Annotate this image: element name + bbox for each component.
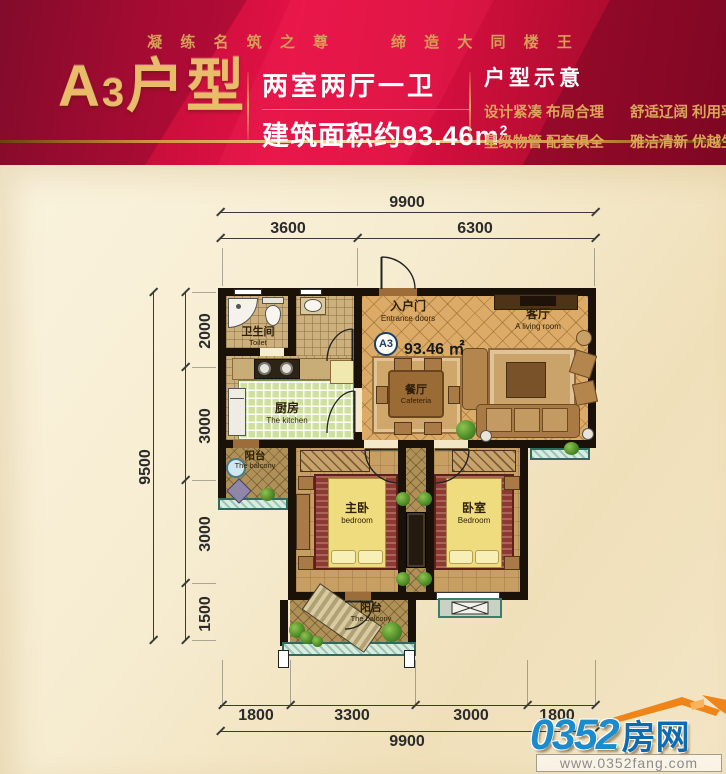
header-banner: 凝 练 名 筑 之 尊缔 造 大 同 楼 王 A3户型 两室两厅一卫 建筑面积约… bbox=[0, 0, 726, 165]
floor-lamp-icon bbox=[480, 430, 492, 442]
slogan-right: 缔 造 大 同 楼 王 bbox=[391, 34, 579, 51]
air-shaft bbox=[438, 598, 502, 618]
sofa-cushion bbox=[486, 408, 512, 432]
dim-top-seg2: 6300 bbox=[445, 220, 505, 238]
label-en: Entrance doors bbox=[372, 314, 444, 323]
unit-badge: A3 bbox=[374, 332, 398, 356]
label-cn: 卫生间 bbox=[228, 326, 288, 339]
area-line: 建筑面积约93.46m2 bbox=[262, 114, 508, 153]
pillow bbox=[449, 550, 473, 564]
site-logo[interactable]: 0352房网 www.0352fang.com bbox=[528, 694, 726, 774]
logo-number: 0352 bbox=[530, 711, 618, 759]
dim-left-seg3: 3000 bbox=[197, 509, 215, 559]
sofa-cushion bbox=[514, 408, 540, 432]
label-en: The balcony bbox=[332, 615, 410, 624]
layout-line: 两室两厅一卫 bbox=[262, 66, 508, 103]
feature-text: 星级物管 配套俱全 bbox=[484, 131, 604, 152]
side-balcony-window bbox=[218, 498, 288, 510]
summary-separator bbox=[262, 109, 470, 110]
wall-bottom-balcony-left bbox=[280, 600, 288, 646]
wall-bedroom-bottom-b bbox=[372, 592, 436, 600]
dim-left-seg2: 3000 bbox=[197, 401, 215, 451]
plant-icon bbox=[418, 572, 432, 586]
label-dining: 餐厅 Cafeteria bbox=[389, 384, 443, 405]
toilet-tank-icon bbox=[262, 297, 284, 304]
label-en: A living room bbox=[498, 322, 578, 331]
plant-icon bbox=[456, 420, 476, 440]
label-cn: 餐厅 bbox=[389, 384, 443, 397]
unit-area-value: 93.46 ㎡ bbox=[404, 335, 494, 359]
wall-bedroom-left bbox=[288, 448, 296, 600]
unit-type-title: A3户型 bbox=[58, 58, 246, 116]
plant-icon bbox=[564, 442, 579, 455]
tv-icon bbox=[520, 296, 556, 306]
title-divider-2 bbox=[469, 72, 471, 140]
nightstand bbox=[504, 476, 520, 490]
section-title: 户型示意 bbox=[484, 62, 726, 92]
dim-extension bbox=[594, 248, 595, 286]
label-en: Toilet bbox=[228, 339, 288, 348]
label-en: The balcony bbox=[222, 462, 288, 471]
plant-icon bbox=[396, 492, 410, 506]
label-toilet: 卫生间 Toilet bbox=[228, 326, 288, 347]
window-toilet bbox=[234, 289, 262, 295]
wall-kitchen-right-a bbox=[354, 372, 362, 388]
dim-left-seg4: 1500 bbox=[197, 589, 215, 639]
balcony-post-right bbox=[404, 650, 415, 668]
label-second-bedroom: 卧室 Bedroom bbox=[447, 502, 501, 525]
area-text: 建筑面积约93.46m bbox=[262, 121, 500, 151]
feature-text: 雅洁清新 优越生活 bbox=[630, 131, 726, 152]
dim-bottom-seg3: 3000 bbox=[441, 707, 501, 725]
dining-chair bbox=[424, 422, 442, 435]
dim-left-seg1: 2000 bbox=[197, 306, 215, 356]
label-cn: 卧室 bbox=[447, 502, 501, 516]
washbasin-icon bbox=[304, 299, 322, 312]
entrance-door-swing bbox=[380, 256, 416, 290]
dining-chair bbox=[448, 386, 460, 404]
burner-icon bbox=[258, 362, 271, 375]
label-cn: 阳台 bbox=[332, 602, 410, 615]
dining-chair bbox=[394, 422, 412, 435]
second-bedroom-door-swing bbox=[434, 448, 470, 484]
fridge-icon bbox=[228, 388, 246, 436]
nightstand bbox=[298, 476, 314, 490]
fridge-line bbox=[230, 398, 244, 399]
label-bottom-balcony: 阳台 The balcony bbox=[332, 602, 410, 623]
dim-extension bbox=[222, 660, 223, 704]
nightstand bbox=[504, 556, 520, 570]
bedroom-bench bbox=[296, 494, 310, 550]
flyer: 凝 练 名 筑 之 尊缔 造 大 同 楼 王 A3户型 两室两厅一卫 建筑面积约… bbox=[0, 0, 726, 774]
dim-extension bbox=[192, 583, 216, 584]
logo-url[interactable]: www.0352fang.com bbox=[536, 754, 722, 772]
coffee-table bbox=[506, 362, 546, 398]
wall-bedroom-bottom-c bbox=[500, 592, 528, 600]
dim-left-total: 9500 bbox=[137, 442, 155, 492]
dim-extension bbox=[192, 292, 216, 293]
title-letter: A bbox=[58, 54, 102, 119]
niche-closet bbox=[406, 512, 426, 568]
label-cn: 主卧 bbox=[329, 502, 385, 516]
wall-niche-right bbox=[426, 448, 434, 592]
slogan-left: 凝 练 名 筑 之 尊 bbox=[147, 34, 335, 51]
features-block: 户型示意 设计紧凑 布局合理 舒适辽阔 利用率高 星级物管 配套俱全 雅洁清新 … bbox=[484, 62, 726, 152]
wardrobe-master bbox=[300, 450, 370, 472]
pillow bbox=[358, 550, 383, 564]
title-divider-1 bbox=[247, 72, 249, 140]
dim-top-seg1: 3600 bbox=[258, 220, 318, 238]
master-bedroom-door-swing bbox=[364, 448, 400, 484]
hall-door-swing bbox=[326, 328, 354, 362]
floor-lamp-icon bbox=[582, 428, 594, 440]
wall-left-upper bbox=[218, 288, 226, 448]
shower-head-icon bbox=[236, 304, 241, 309]
dim-extension bbox=[357, 248, 358, 286]
armchair bbox=[572, 380, 598, 406]
balcony-side-threshold bbox=[232, 440, 260, 448]
plant-icon bbox=[382, 622, 402, 642]
side-table bbox=[576, 330, 592, 346]
wall-toilet-bottom-a bbox=[226, 348, 260, 356]
label-en: Bedroom bbox=[447, 516, 501, 525]
burner-icon bbox=[280, 362, 293, 375]
label-master-bedroom: 主卧 bedroom bbox=[329, 502, 385, 525]
label-cn: 入户门 bbox=[372, 300, 444, 314]
label-side-balcony: 阳台 The balcony bbox=[222, 450, 288, 471]
label-kitchen: 厨房 The kitchen bbox=[252, 402, 322, 425]
kitchen-sink bbox=[330, 360, 354, 384]
pillow bbox=[475, 550, 499, 564]
label-cn: 厨房 bbox=[252, 402, 322, 416]
logo-text: 0352房网 bbox=[530, 710, 690, 760]
dim-bottom-seg2: 3300 bbox=[322, 707, 382, 725]
dim-top-total: 9900 bbox=[377, 194, 437, 212]
feature-row-1: 设计紧凑 布局合理 舒适辽阔 利用率高 bbox=[484, 101, 726, 122]
dim-bottom-seg1: 1800 bbox=[226, 707, 286, 725]
dim-extension bbox=[290, 660, 291, 704]
title-suffix: 户型 bbox=[126, 54, 246, 119]
plant-icon bbox=[260, 488, 275, 501]
dim-line-top-total bbox=[220, 212, 595, 213]
plant-icon bbox=[418, 492, 432, 506]
nightstand bbox=[298, 556, 314, 570]
wall-mid-b bbox=[398, 440, 434, 448]
dim-extension bbox=[192, 480, 216, 481]
bottom-balcony-window bbox=[282, 642, 416, 656]
label-entrance: 入户门 Entrance doors bbox=[372, 300, 444, 323]
label-en: The kitchen bbox=[252, 416, 322, 425]
feature-row-2: 星级物管 配套俱全 雅洁清新 优越生活 bbox=[484, 131, 726, 152]
wall-bedroom-right bbox=[520, 448, 528, 600]
wall-toilet-bottom-b bbox=[284, 348, 296, 356]
logo-name: 房网 bbox=[622, 719, 690, 757]
dim-extension bbox=[192, 640, 216, 641]
feature-text: 舒适辽阔 利用率高 bbox=[630, 101, 726, 122]
balcony-post-left bbox=[278, 650, 289, 668]
pillow bbox=[331, 550, 356, 564]
label-en: bedroom bbox=[329, 516, 385, 525]
dim-line-top-segments bbox=[220, 238, 595, 239]
label-cn: 客厅 bbox=[498, 308, 578, 322]
balcony-bottom-threshold bbox=[344, 592, 372, 600]
plant-icon bbox=[312, 636, 323, 647]
window-hall bbox=[300, 289, 322, 295]
unit-summary: 两室两厅一卫 建筑面积约93.46m2 bbox=[262, 66, 508, 153]
dim-line-left-segments bbox=[185, 292, 186, 640]
dim-bottom-total: 9900 bbox=[377, 733, 437, 751]
dim-extension bbox=[192, 367, 216, 368]
header-slogan: 凝 练 名 筑 之 尊缔 造 大 同 楼 王 bbox=[0, 31, 726, 52]
plant-icon bbox=[396, 572, 410, 586]
label-en: Cafeteria bbox=[389, 397, 443, 406]
wall-toilet-right bbox=[288, 296, 296, 348]
dining-chair bbox=[376, 386, 388, 404]
sofa-cushion bbox=[542, 408, 568, 432]
title-number: 3 bbox=[102, 71, 126, 115]
kitchen-door-swing bbox=[326, 390, 356, 434]
label-living: 客厅 A living room bbox=[498, 308, 578, 331]
feature-text: 设计紧凑 布局合理 bbox=[484, 101, 604, 122]
dim-extension bbox=[415, 660, 416, 704]
wall-hall-right bbox=[354, 296, 362, 372]
living-window-sill bbox=[530, 448, 590, 460]
dim-extension bbox=[222, 248, 223, 286]
